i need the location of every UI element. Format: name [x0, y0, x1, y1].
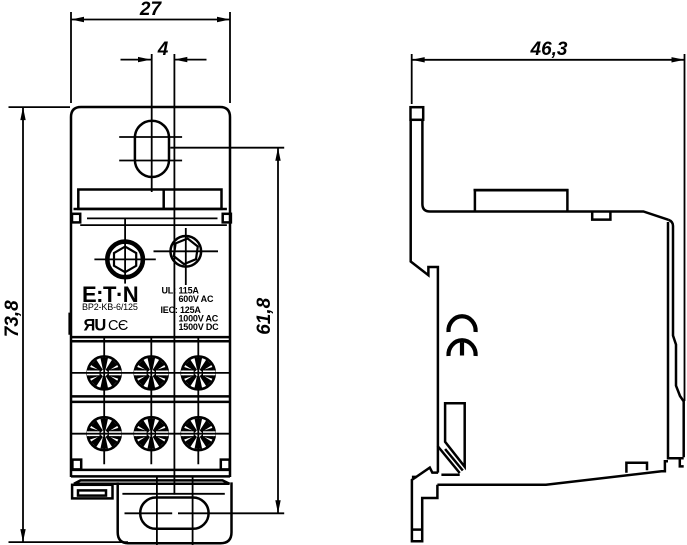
svg-text:73,8: 73,8	[2, 300, 23, 337]
svg-text:4: 4	[157, 39, 169, 60]
svg-text:BP2-KB-6/125: BP2-KB-6/125	[82, 302, 138, 312]
svg-text:CЄ: CЄ	[108, 318, 128, 334]
svg-text:1500V DC: 1500V DC	[179, 322, 220, 332]
svg-text:27: 27	[139, 0, 163, 20]
svg-text:46,3: 46,3	[530, 39, 568, 60]
svg-text:600V AC: 600V AC	[179, 294, 214, 304]
svg-text:ЯU: ЯU	[84, 317, 106, 335]
svg-text:61,8: 61,8	[254, 297, 275, 334]
svg-text:UL:: UL:	[162, 286, 177, 296]
